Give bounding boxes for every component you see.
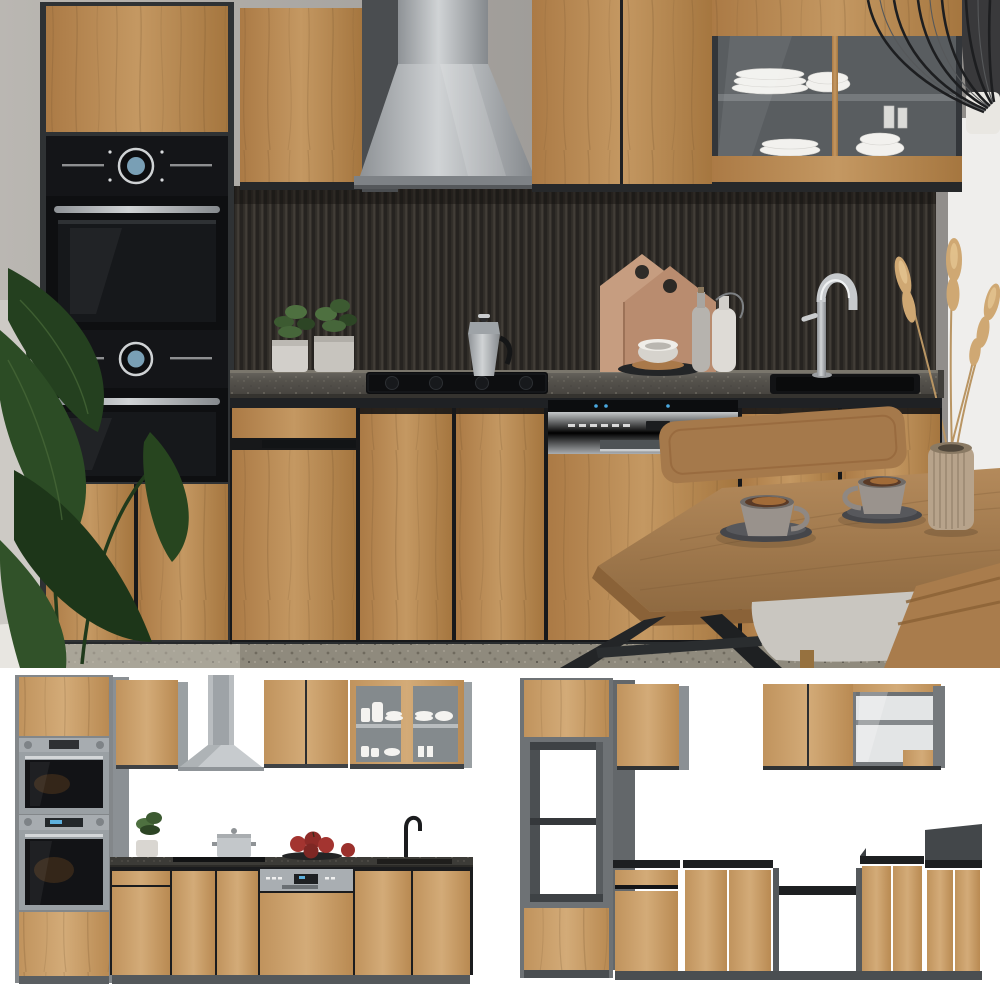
drawer-front xyxy=(232,408,356,438)
tall-unit-front: Built-in microwave and oven (stainless f… xyxy=(15,675,113,984)
end-base xyxy=(925,824,982,971)
base-cabinets-front: Handleless oak base cabinets on anthraci… xyxy=(110,867,473,984)
faucet-column xyxy=(817,298,826,376)
glass-cabinet-front: Glass display wall cabinet with white di… xyxy=(350,680,472,769)
kitchen-scene: Kitchen scene: oak-front kitchenette wit… xyxy=(0,0,1000,668)
plinth xyxy=(615,971,982,980)
sink-front xyxy=(377,859,452,864)
base-carcasses xyxy=(613,824,982,980)
cooktop-front xyxy=(173,857,265,862)
wall-cabinet xyxy=(116,680,188,769)
wall-cabinets xyxy=(264,680,348,768)
wall-cabinet xyxy=(617,684,689,770)
appliance-gap xyxy=(773,868,862,971)
product-photo: Kitchen scene: oak-front kitchenette wit… xyxy=(0,0,1000,1000)
oven-upper xyxy=(46,136,228,322)
thumbnail-front-view: Front elevation render of the full kitch… xyxy=(12,672,492,988)
ribbed-vase: Dried pampas grass in ribbed vase xyxy=(924,442,978,537)
cooktop: Black built-in cooktop with moka pot xyxy=(366,372,548,394)
faucet-front xyxy=(406,818,420,857)
two-door-base xyxy=(860,848,924,971)
oven-handle xyxy=(54,206,220,213)
wall-cabinets-oak-right: Oak wall cabinets xyxy=(532,0,712,192)
herb-pot xyxy=(136,812,162,857)
glass-cabinet-carcass: Glass display wall cabinet with white di… xyxy=(853,684,945,770)
counter-props xyxy=(136,812,452,864)
drawer-base xyxy=(613,860,680,971)
tall-carcass: Open appliance niche in tall carcass xyxy=(520,678,613,978)
dishwasher-front xyxy=(260,869,353,975)
cooking-pot xyxy=(212,828,256,857)
two-door-base xyxy=(683,860,773,971)
wall-cabinets-right: Glass display wall cabinet with white di… xyxy=(763,684,945,770)
apples xyxy=(282,832,355,861)
range-hood-front: Stainless steel chimney range hood xyxy=(178,675,264,771)
thumbnail-carcass-view: Carcass render of the kitchen set withou… xyxy=(508,672,988,988)
